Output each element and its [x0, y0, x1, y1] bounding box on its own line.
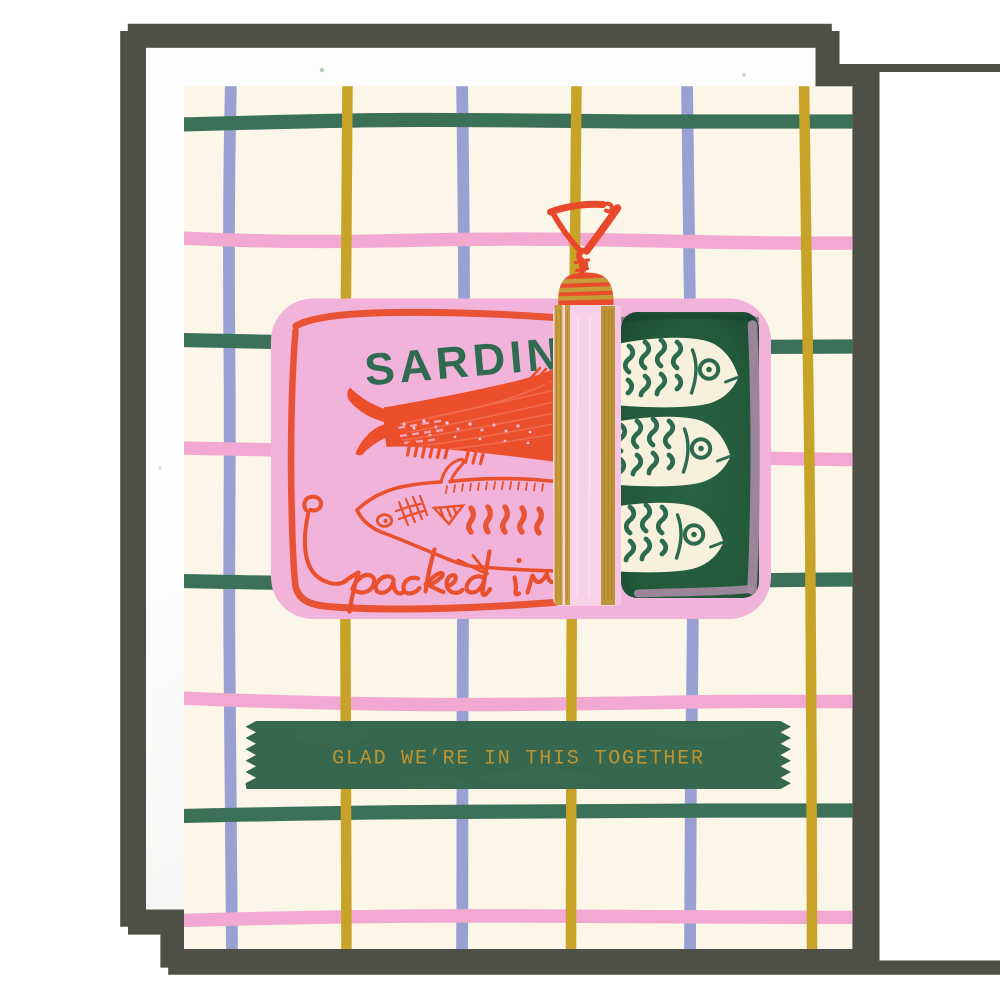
svg-text:GLAD WE’RE IN THIS TOGETHER: GLAD WE’RE IN THIS TOGETHER — [332, 748, 705, 771]
